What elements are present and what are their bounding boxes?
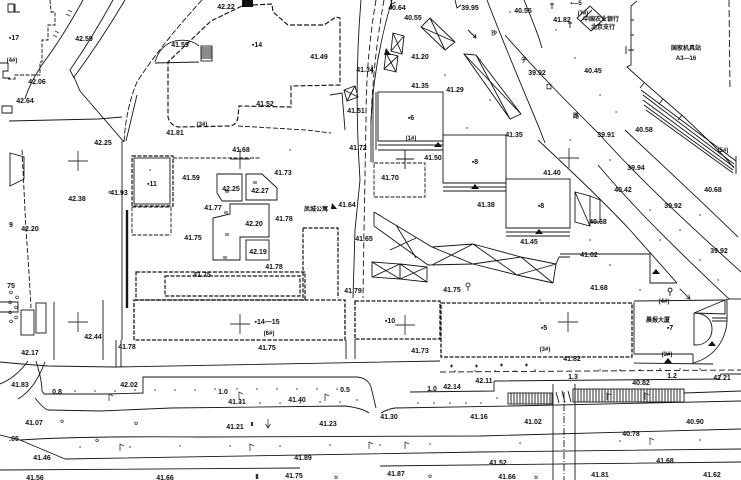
svg-text:中国农业银行: 中国农业银行 [583,15,619,23]
svg-text:0.8: 0.8 [52,389,62,396]
svg-text:40.90: 40.90 [686,419,704,426]
svg-text:(4#): (4#) [7,58,18,64]
svg-text:41.49: 41.49 [310,54,328,61]
svg-text:40.82: 40.82 [632,380,650,387]
svg-text:39.94: 39.94 [627,165,645,172]
svg-text:40.58: 40.58 [635,127,653,134]
svg-text:41.30: 41.30 [380,414,398,421]
svg-text:41.68: 41.68 [656,458,674,465]
svg-text:42.06: 42.06 [28,79,46,86]
svg-text:(3#): (3#) [197,122,208,128]
svg-text:▪10: ▪10 [385,318,395,325]
svg-text:41.40: 41.40 [288,397,306,404]
svg-text:42.59: 42.59 [75,36,93,43]
svg-text:41.65: 41.65 [355,236,373,243]
svg-text:41.07: 41.07 [25,420,43,427]
svg-text:41.35: 41.35 [505,132,523,139]
svg-text:41.68: 41.68 [232,147,250,154]
svg-text:41.82: 41.82 [553,17,571,24]
svg-text:▪8: ▪8 [472,159,478,166]
svg-text:▪6: ▪6 [408,115,414,122]
svg-text:41.68: 41.68 [590,285,608,292]
svg-text:1.2: 1.2 [667,373,677,380]
svg-text:41.45: 41.45 [520,239,538,246]
svg-text:41.64: 41.64 [338,202,356,209]
svg-text:41.83: 41.83 [11,382,29,389]
svg-text:41.78: 41.78 [265,264,283,271]
svg-text:42.19: 42.19 [249,249,267,256]
svg-text:41.73: 41.73 [274,170,292,177]
svg-text:41.34: 41.34 [356,67,374,74]
svg-text:40.78: 40.78 [622,431,640,438]
svg-text:41.89: 41.89 [294,455,312,462]
svg-text:39.95: 39.95 [461,5,479,12]
svg-text:41.02: 41.02 [524,419,542,426]
svg-text:41.75: 41.75 [443,287,461,294]
svg-text:▪17: ▪17 [9,35,19,42]
svg-text:41.75: 41.75 [285,473,303,480]
svg-text:41.02: 41.02 [580,252,598,259]
svg-text:41.59: 41.59 [171,42,189,49]
svg-text:41.75: 41.75 [193,272,211,279]
svg-text:41.66: 41.66 [498,474,516,480]
svg-text:▪8: ▪8 [538,203,544,210]
svg-text:41.78: 41.78 [275,216,293,223]
svg-text:40.55: 40.55 [514,8,532,15]
svg-text:41.29: 41.29 [446,87,464,94]
svg-text:41.56: 41.56 [26,475,44,480]
svg-text:▪7: ▪7 [667,325,673,332]
svg-text:41.38: 41.38 [477,202,495,209]
svg-text:41.35: 41.35 [411,83,429,90]
svg-text:41.66: 41.66 [156,475,174,480]
svg-text:41.50: 41.50 [424,155,442,162]
svg-text:41.79: 41.79 [344,288,362,295]
svg-text:42.38: 42.38 [68,196,86,203]
svg-text:▪11: ▪11 [147,181,157,188]
svg-text:41.31: 41.31 [228,399,246,406]
svg-text:北京支行: 北京支行 [591,23,615,31]
svg-text:41.52: 41.52 [256,101,274,108]
svg-text:41.87: 41.87 [387,471,405,478]
svg-text:路: 路 [573,112,580,120]
svg-text:(4#): (4#) [659,299,670,305]
svg-text:42.44: 42.44 [84,334,102,341]
svg-text:42.11: 42.11 [475,378,492,385]
svg-text:42.14: 42.14 [443,384,461,391]
svg-text:沙: 沙 [491,30,497,37]
svg-text:41.73: 41.73 [411,348,429,355]
svg-text:▪14—15: ▪14—15 [254,319,279,326]
svg-text:40.42: 40.42 [614,187,632,194]
svg-text:40.45: 40.45 [584,68,602,75]
svg-text:41.51: 41.51 [347,108,365,115]
svg-text:0.5: 0.5 [340,387,350,394]
svg-text:42.02: 42.02 [120,382,138,389]
svg-text:1.3: 1.3 [568,374,578,381]
svg-text:40.68: 40.68 [589,219,607,226]
svg-text:晨报大厦: 晨报大厦 [646,316,671,324]
svg-text:子: 子 [521,57,527,64]
svg-text:41.70: 41.70 [381,175,399,182]
svg-text:42.25: 42.25 [94,140,112,147]
svg-text:42.22: 42.22 [217,4,235,11]
svg-text:42.64: 42.64 [16,98,34,105]
svg-text:41.81: 41.81 [166,130,184,137]
svg-text:▪5: ▪5 [541,325,547,332]
svg-text:.05: .05 [9,436,19,443]
svg-text:(3#): (3#) [662,352,673,358]
svg-text:39.92: 39.92 [664,203,682,210]
svg-text:41.23: 41.23 [319,421,337,428]
svg-text:▪—5: ▪—5 [570,1,582,7]
svg-text:40.55: 40.55 [404,15,422,22]
svg-text:42.27: 42.27 [251,188,269,195]
svg-text:40.68: 40.68 [704,187,722,194]
svg-text:39.92: 39.92 [710,248,728,255]
svg-text:1.0: 1.0 [218,389,228,396]
svg-text:9: 9 [9,222,13,229]
svg-text:41.77: 41.77 [204,205,222,212]
svg-text:41.78: 41.78 [118,344,136,351]
svg-text:(5#): (5#) [718,148,729,154]
svg-text:▪14: ▪14 [252,42,262,49]
svg-text:41.59: 41.59 [182,175,200,182]
svg-text:41.21: 41.21 [226,424,244,431]
svg-text:75: 75 [7,283,15,290]
svg-text:41.81: 41.81 [591,472,609,479]
svg-text:41.20: 41.20 [411,54,429,61]
svg-text:凤城公寓: 凤城公寓 [304,205,328,213]
svg-text:(3#): (3#) [540,347,551,353]
svg-text:41.82: 41.82 [563,356,581,363]
svg-text:41.75: 41.75 [258,345,276,352]
svg-text:39.92: 39.92 [528,70,546,77]
svg-text:42.20: 42.20 [21,226,39,233]
svg-text:42.21: 42.21 [713,375,731,382]
svg-text:41.72: 41.72 [349,145,367,152]
svg-text:41.52: 41.52 [489,460,507,467]
svg-text:39.91: 39.91 [597,132,615,139]
svg-text:42.25: 42.25 [222,186,240,193]
svg-text:41.93: 41.93 [110,190,128,197]
svg-text:(1#): (1#) [406,136,417,142]
svg-text:42.17: 42.17 [21,350,39,357]
svg-text:41.16: 41.16 [470,414,488,421]
svg-text:42.20: 42.20 [245,221,263,228]
svg-text:41.46: 41.46 [33,455,51,462]
svg-text:A3—16: A3—16 [676,56,697,62]
svg-text:41.62: 41.62 [703,472,721,479]
svg-text:(6#): (6#) [264,331,275,337]
svg-text:40.64: 40.64 [388,5,406,12]
svg-text:41.75: 41.75 [184,235,202,242]
svg-text:1.0: 1.0 [427,386,437,393]
svg-text:口: 口 [546,84,552,91]
svg-text:国家机具站: 国家机具站 [671,44,701,52]
svg-text:41.40: 41.40 [543,170,561,177]
